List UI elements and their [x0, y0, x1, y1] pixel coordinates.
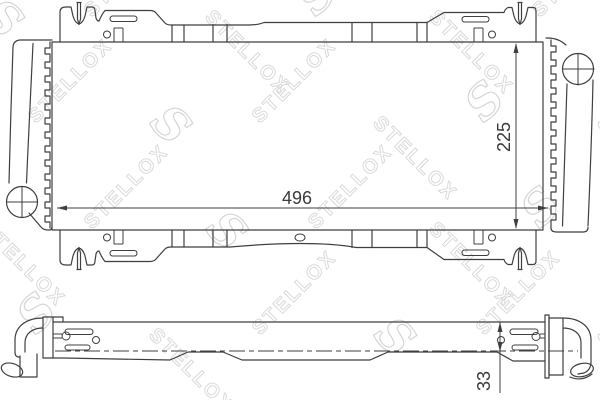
radiator-technical-drawing: SSTELLOXSTELLOXSSTELLOXSTELLOXSTELLOXSST… — [0, 0, 600, 400]
front-view: 496 225 — [6, 3, 595, 270]
dim-width-label: 496 — [282, 188, 312, 208]
mounting-pin-bottom-right — [518, 248, 522, 270]
watermark-text: STELLOX — [144, 324, 237, 400]
dim-thickness-label: 33 — [474, 371, 494, 391]
watermark-text: STELLOX — [80, 140, 173, 233]
watermark-logo: S — [140, 94, 202, 156]
drain-port — [6, 186, 38, 218]
watermark-text: STELLOX — [24, 34, 117, 127]
side-view: 33 — [0, 315, 595, 393]
mounting-pin-bottom-left — [77, 248, 81, 270]
watermark-logo: S — [0, 0, 34, 49]
mounting-pin-top-right — [518, 3, 522, 25]
drawing-canvas: SSTELLOXSTELLOXSSTELLOXSTELLOXSTELLOXSST… — [0, 0, 600, 400]
outlet-elbow-right — [532, 315, 595, 379]
watermark-text: STELLOX — [528, 0, 600, 22]
watermark-text: STELLOX — [304, 140, 397, 233]
dim-height-label: 225 — [494, 122, 514, 152]
watermark-text: STELLOX — [248, 246, 341, 339]
watermark-text: STELLOX — [592, 112, 600, 205]
filler-cap — [562, 53, 595, 86]
left-tank — [6, 40, 52, 230]
watermark-text: STELLOX — [592, 324, 600, 400]
